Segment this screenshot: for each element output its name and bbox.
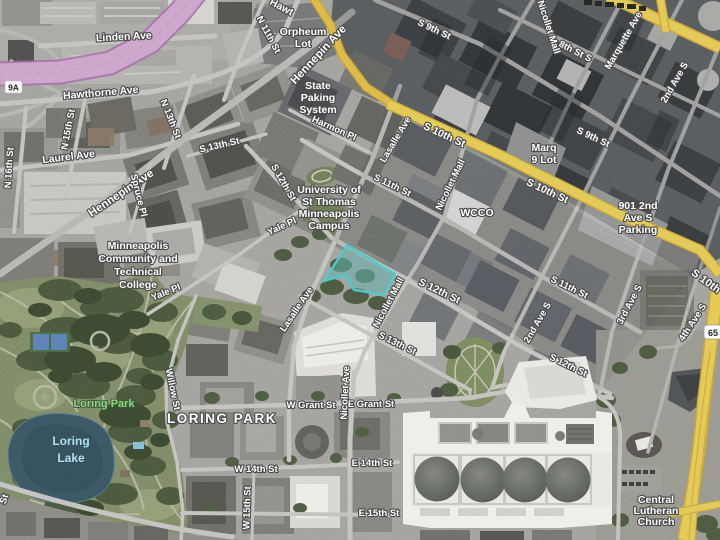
svg-text:Technical: Technical — [114, 266, 162, 278]
svg-text:Lot: Lot — [295, 38, 312, 50]
svg-text:WCCO: WCCO — [460, 207, 493, 219]
svg-text:Orpheum: Orpheum — [280, 26, 327, 38]
svg-text:Minneapolis: Minneapolis — [108, 240, 169, 252]
svg-text:9 Lot: 9 Lot — [531, 154, 557, 166]
svg-text:Community and: Community and — [98, 253, 177, 265]
svg-text:W 14th St: W 14th St — [234, 464, 278, 475]
svg-text:Minneapolis: Minneapolis — [299, 208, 360, 220]
svg-text:Loring: Loring — [52, 434, 89, 448]
svg-text:Loring Park: Loring Park — [73, 398, 135, 410]
svg-text:Campus: Campus — [308, 220, 350, 232]
svg-text:System: System — [299, 104, 336, 116]
svg-text:Parking: Parking — [619, 224, 658, 236]
svg-text:901 2nd: 901 2nd — [618, 200, 657, 212]
svg-text:W Grant St: W Grant St — [286, 400, 336, 411]
svg-text:E 15th St: E 15th St — [359, 508, 400, 519]
svg-text:University of: University of — [297, 184, 361, 196]
svg-text:Lake: Lake — [57, 451, 85, 465]
svg-text:W 15th St: W 15th St — [241, 485, 254, 529]
svg-text:Ave S: Ave S — [624, 212, 653, 224]
svg-text:9A: 9A — [8, 83, 19, 93]
svg-text:Marq: Marq — [531, 142, 556, 154]
svg-text:Church: Church — [638, 516, 675, 528]
svg-text:State: State — [305, 80, 331, 92]
svg-text:Paking: Paking — [301, 92, 335, 104]
svg-text:College: College — [119, 279, 157, 291]
svg-text:65: 65 — [708, 328, 718, 338]
svg-text:LORING PARK: LORING PARK — [167, 411, 277, 426]
svg-text:E Grant St: E Grant St — [348, 399, 395, 410]
svg-text:E 14th St: E 14th St — [352, 458, 393, 469]
svg-text:St Thomas: St Thomas — [302, 196, 356, 208]
